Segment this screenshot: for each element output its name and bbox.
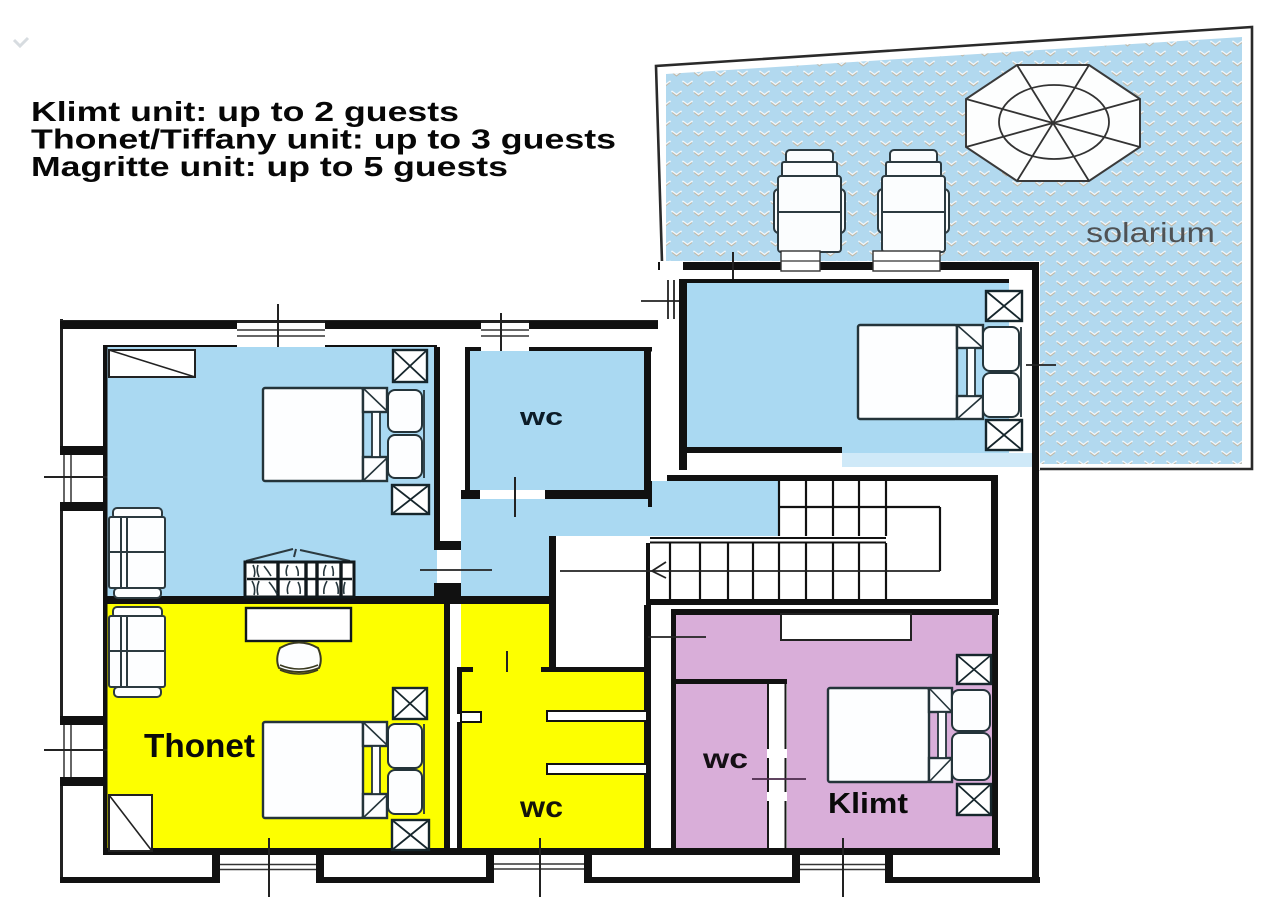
svg-text:Klimt unit: up to 2 guests: Klimt unit: up to 2 guests bbox=[31, 96, 459, 127]
svg-text:Klimt: Klimt bbox=[828, 788, 908, 820]
svg-text:wc: wc bbox=[519, 791, 563, 824]
svg-text:Magritte unit: up to 5 guests: Magritte unit: up to 5 guests bbox=[31, 151, 508, 182]
svg-text:wc: wc bbox=[519, 404, 563, 431]
svg-text:solarium: solarium bbox=[1086, 217, 1215, 248]
svg-text:Thonet/Tiffany unit: up to 3 g: Thonet/Tiffany unit: up to 3 guests bbox=[31, 124, 616, 155]
svg-text:Thonet: Thonet bbox=[144, 727, 255, 764]
svg-text:wc: wc bbox=[702, 743, 748, 774]
